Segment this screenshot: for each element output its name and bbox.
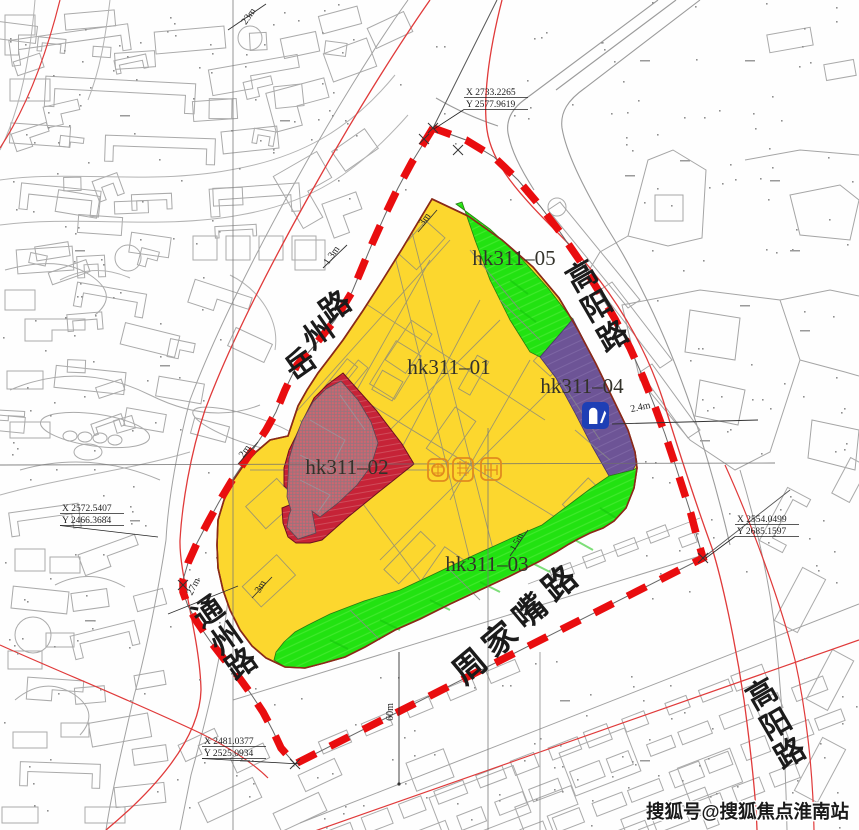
svg-text:hk311–02: hk311–02 [305, 455, 388, 479]
svg-text:X 2572.5407: X 2572.5407 [62, 504, 112, 514]
svg-text:Y 2525.0934: Y 2525.0934 [204, 749, 254, 759]
svg-text:X 2554.0499: X 2554.0499 [737, 515, 787, 525]
svg-text:Y 2577.9619: Y 2577.9619 [466, 100, 516, 110]
svg-text:X 2733.2265: X 2733.2265 [466, 88, 516, 98]
svg-text:hk311–01: hk311–01 [407, 355, 490, 379]
svg-text:Y 2685.1597: Y 2685.1597 [737, 527, 787, 537]
svg-text:60m: 60m [385, 703, 396, 721]
svg-text:搜狐号@搜狐焦点淮南站: 搜狐号@搜狐焦点淮南站 [646, 801, 850, 822]
svg-text:Y 2466.3684: Y 2466.3684 [62, 516, 112, 526]
svg-text:X 2481.0377: X 2481.0377 [204, 737, 254, 747]
svg-text:hk311–05: hk311–05 [472, 246, 555, 270]
svg-text:hk311–04: hk311–04 [540, 374, 624, 398]
svg-text:hk311–03: hk311–03 [445, 552, 528, 576]
